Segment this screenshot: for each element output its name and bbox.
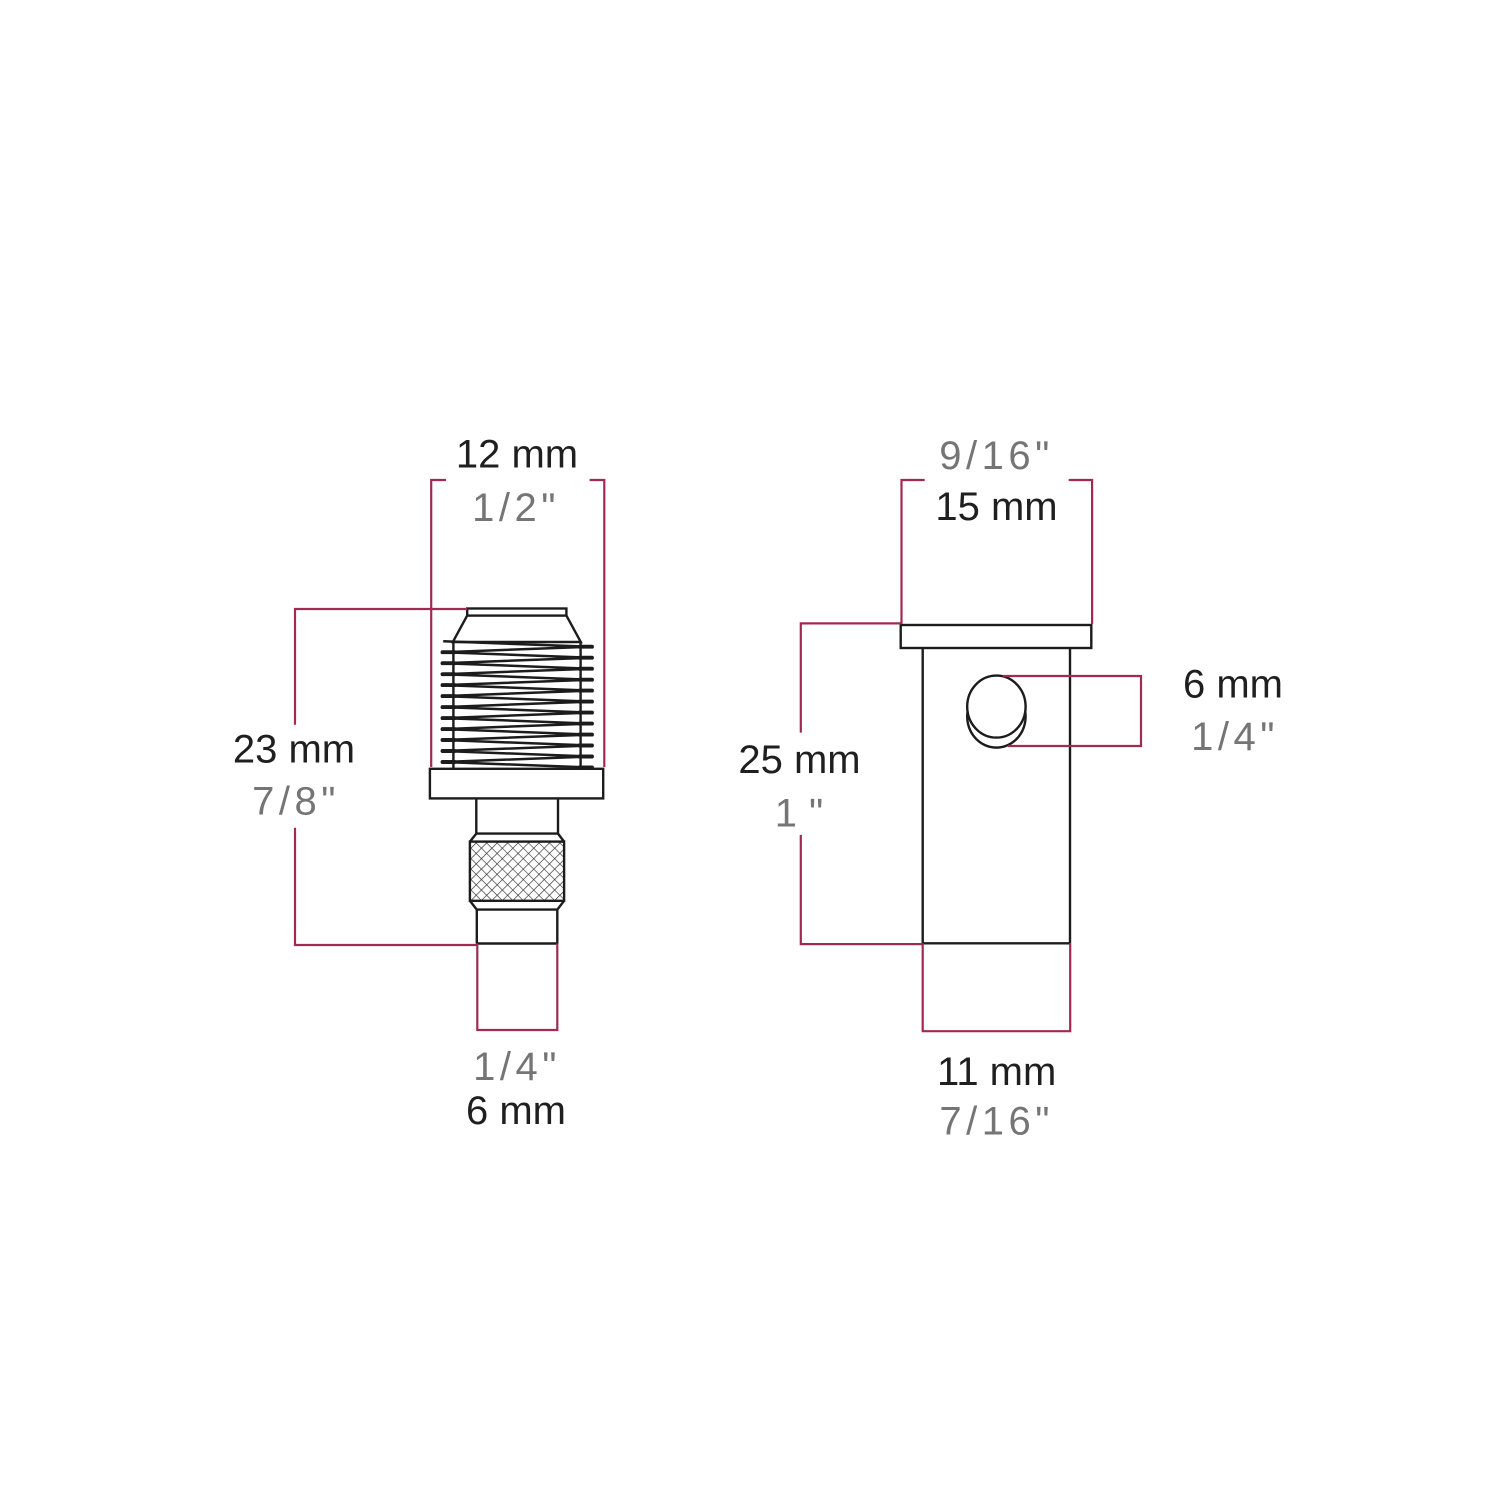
svg-text:11 mm: 11 mm	[937, 1050, 1056, 1094]
svg-text:9/16": 9/16"	[939, 434, 1054, 478]
svg-text:6 mm: 6 mm	[466, 1089, 566, 1133]
svg-text:1/4": 1/4"	[473, 1045, 561, 1089]
svg-text:6 mm: 6 mm	[1183, 663, 1283, 707]
svg-text:1/4": 1/4"	[1191, 715, 1279, 759]
svg-text:7/8": 7/8"	[252, 780, 340, 824]
svg-text:1": 1"	[775, 792, 835, 836]
svg-text:15 mm: 15 mm	[935, 485, 1057, 529]
svg-text:1/2": 1/2"	[472, 486, 560, 530]
svg-text:12 mm: 12 mm	[456, 433, 578, 477]
svg-text:25 mm: 25 mm	[738, 738, 860, 782]
svg-text:23 mm: 23 mm	[233, 728, 355, 772]
svg-text:7/16": 7/16"	[939, 1100, 1054, 1144]
